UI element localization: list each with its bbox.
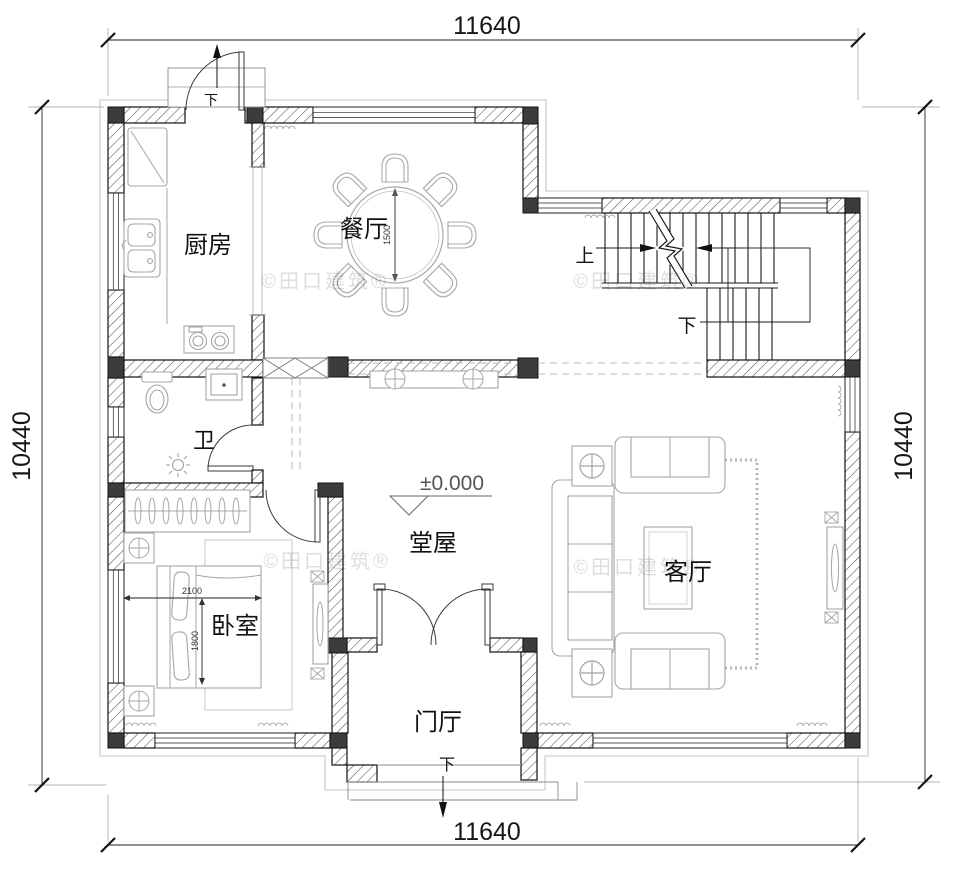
- bathroom-fixtures: [142, 369, 242, 477]
- kitchen-label: 厨房: [184, 232, 232, 259]
- window-stairhall-right: [780, 198, 827, 213]
- sofa-bottom: [615, 633, 725, 689]
- window-bedroom-bottom: [155, 733, 295, 748]
- side-table-top: [572, 446, 612, 486]
- dimension-bottom: 11640: [101, 818, 865, 852]
- dimension-right: 10440: [890, 100, 932, 789]
- console-table: [370, 369, 498, 389]
- dim-left-value: 10440: [8, 411, 36, 481]
- dimension-left: 10440: [8, 100, 49, 792]
- duct-shaft: [263, 358, 328, 378]
- bedroom-furniture: 2100 1800: [123, 490, 328, 716]
- floor-level-value: ±0.000: [420, 472, 484, 495]
- side-table-bottom: [572, 649, 612, 697]
- dining-room-label: 餐厅: [340, 216, 388, 243]
- watermark-stairs: ©田口建筑®: [573, 270, 700, 293]
- hall-label: 堂屋: [409, 530, 457, 557]
- porch-steps: 下: [347, 757, 577, 818]
- shower-head: [166, 453, 190, 477]
- kitchen-door-down-label: 下: [204, 92, 218, 108]
- dimension-top: 11640: [101, 12, 865, 47]
- bedroom-label: 卧室: [211, 613, 259, 640]
- bathroom-label: 卫: [193, 428, 215, 453]
- refrigerator: [128, 128, 167, 186]
- kitchen-back-door: 下: [168, 44, 265, 110]
- watermarks: ©田口建筑® ©田口建筑® ©田口建筑® ©田口建筑®: [261, 270, 700, 579]
- watermark-living: ©田口建筑®: [573, 556, 700, 579]
- entrance-double-door: [374, 584, 493, 645]
- watermark-hall: ©田口建筑®: [263, 550, 390, 573]
- floor-plan-drawing: 11640 11640 10440 10440: [0, 0, 960, 880]
- toilet: [142, 372, 172, 413]
- window-bath-left: [108, 407, 124, 437]
- stair-rail: [728, 248, 810, 322]
- stair-up-label: 上: [575, 245, 594, 267]
- floor-level-mark: ±0.000: [390, 472, 492, 515]
- foyer-label: 门厅: [414, 709, 462, 736]
- stove: [184, 326, 234, 353]
- wardrobe: [125, 490, 250, 532]
- window-living-right: [845, 377, 860, 432]
- floor-plan-page: 11640 11640 10440 10440: [0, 0, 960, 880]
- nightstand-bottom: [124, 686, 154, 716]
- window-living-bottom: [593, 733, 787, 748]
- dim-bottom-value: 11640: [453, 818, 521, 846]
- nightstand-top: [124, 533, 154, 563]
- foyer-down-label: 下: [439, 757, 455, 774]
- dim-right-value: 10440: [890, 411, 918, 481]
- dim-top-value: 11640: [453, 12, 521, 40]
- bed-width-value: 1800: [190, 631, 200, 651]
- window-bedroom-left: [108, 570, 124, 683]
- hall-items: ±0.000: [370, 369, 498, 515]
- stair-down-label: 下: [677, 316, 696, 337]
- stair-treads-lower: [707, 288, 772, 360]
- tv-cabinet: [825, 512, 843, 623]
- bedroom-tv-cabinet: [311, 571, 328, 679]
- bedroom-door: [266, 490, 320, 542]
- window-stairhall-left: [538, 198, 602, 213]
- bed-length-value: 2100: [182, 586, 202, 596]
- kitchen-sink: [122, 219, 160, 277]
- window-kitchen-left: [108, 193, 124, 290]
- sofa-top: [615, 437, 725, 493]
- watermark-dining: ©田口建筑®: [261, 270, 388, 293]
- wash-basin: [206, 369, 242, 400]
- window-dining-top: [313, 107, 475, 123]
